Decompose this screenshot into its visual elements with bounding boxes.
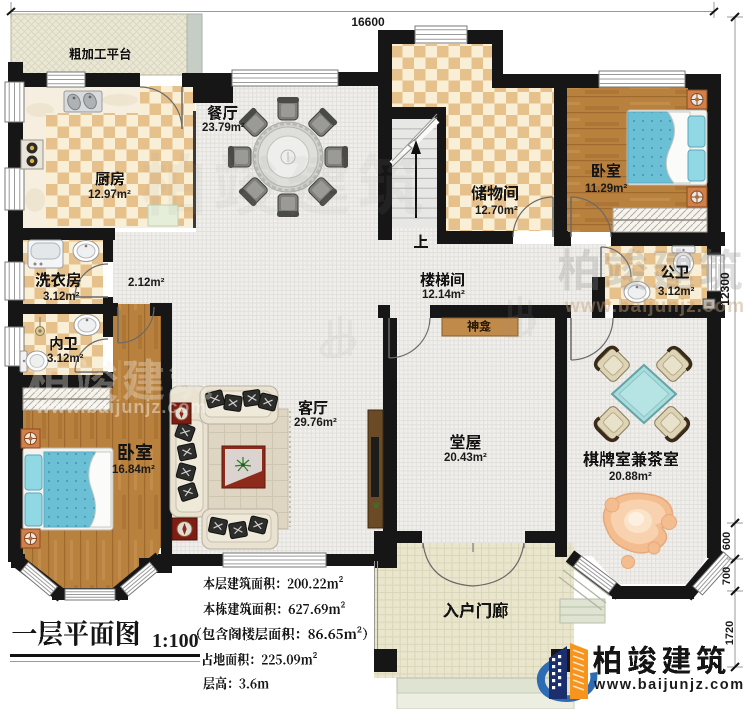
svg-text:12.97m²: 12.97m²	[88, 189, 131, 201]
svg-text:23.79m²: 23.79m²	[202, 122, 245, 134]
svg-text:700: 700	[721, 567, 733, 585]
svg-text:12300: 12300	[718, 272, 732, 306]
svg-text:600: 600	[721, 532, 733, 550]
svg-text:2.12m²: 2.12m²	[128, 277, 165, 289]
svg-text:12.70m²: 12.70m²	[475, 205, 518, 217]
svg-text:1:100: 1:100	[152, 630, 199, 652]
svg-text:12.14m²: 12.14m²	[422, 289, 465, 301]
svg-text:www.baijunjz.com: www.baijunjz.com	[593, 677, 745, 693]
svg-text:11.29m²: 11.29m²	[585, 183, 627, 195]
svg-text:3.12m²: 3.12m²	[658, 286, 695, 298]
svg-text:20.88m²: 20.88m²	[609, 471, 652, 483]
svg-text:29.76m²: 29.76m²	[294, 417, 337, 429]
svg-text:16.84m²: 16.84m²	[112, 464, 155, 476]
svg-text:20.43m²: 20.43m²	[444, 452, 487, 464]
svg-text:3.12m²: 3.12m²	[43, 291, 80, 303]
svg-text:16600: 16600	[351, 15, 385, 29]
svg-text:1720: 1720	[724, 621, 736, 645]
svg-text:3.12m²: 3.12m²	[47, 353, 84, 365]
svg-text:www.baijunjz.com: www.baijunjz.com	[35, 397, 207, 417]
